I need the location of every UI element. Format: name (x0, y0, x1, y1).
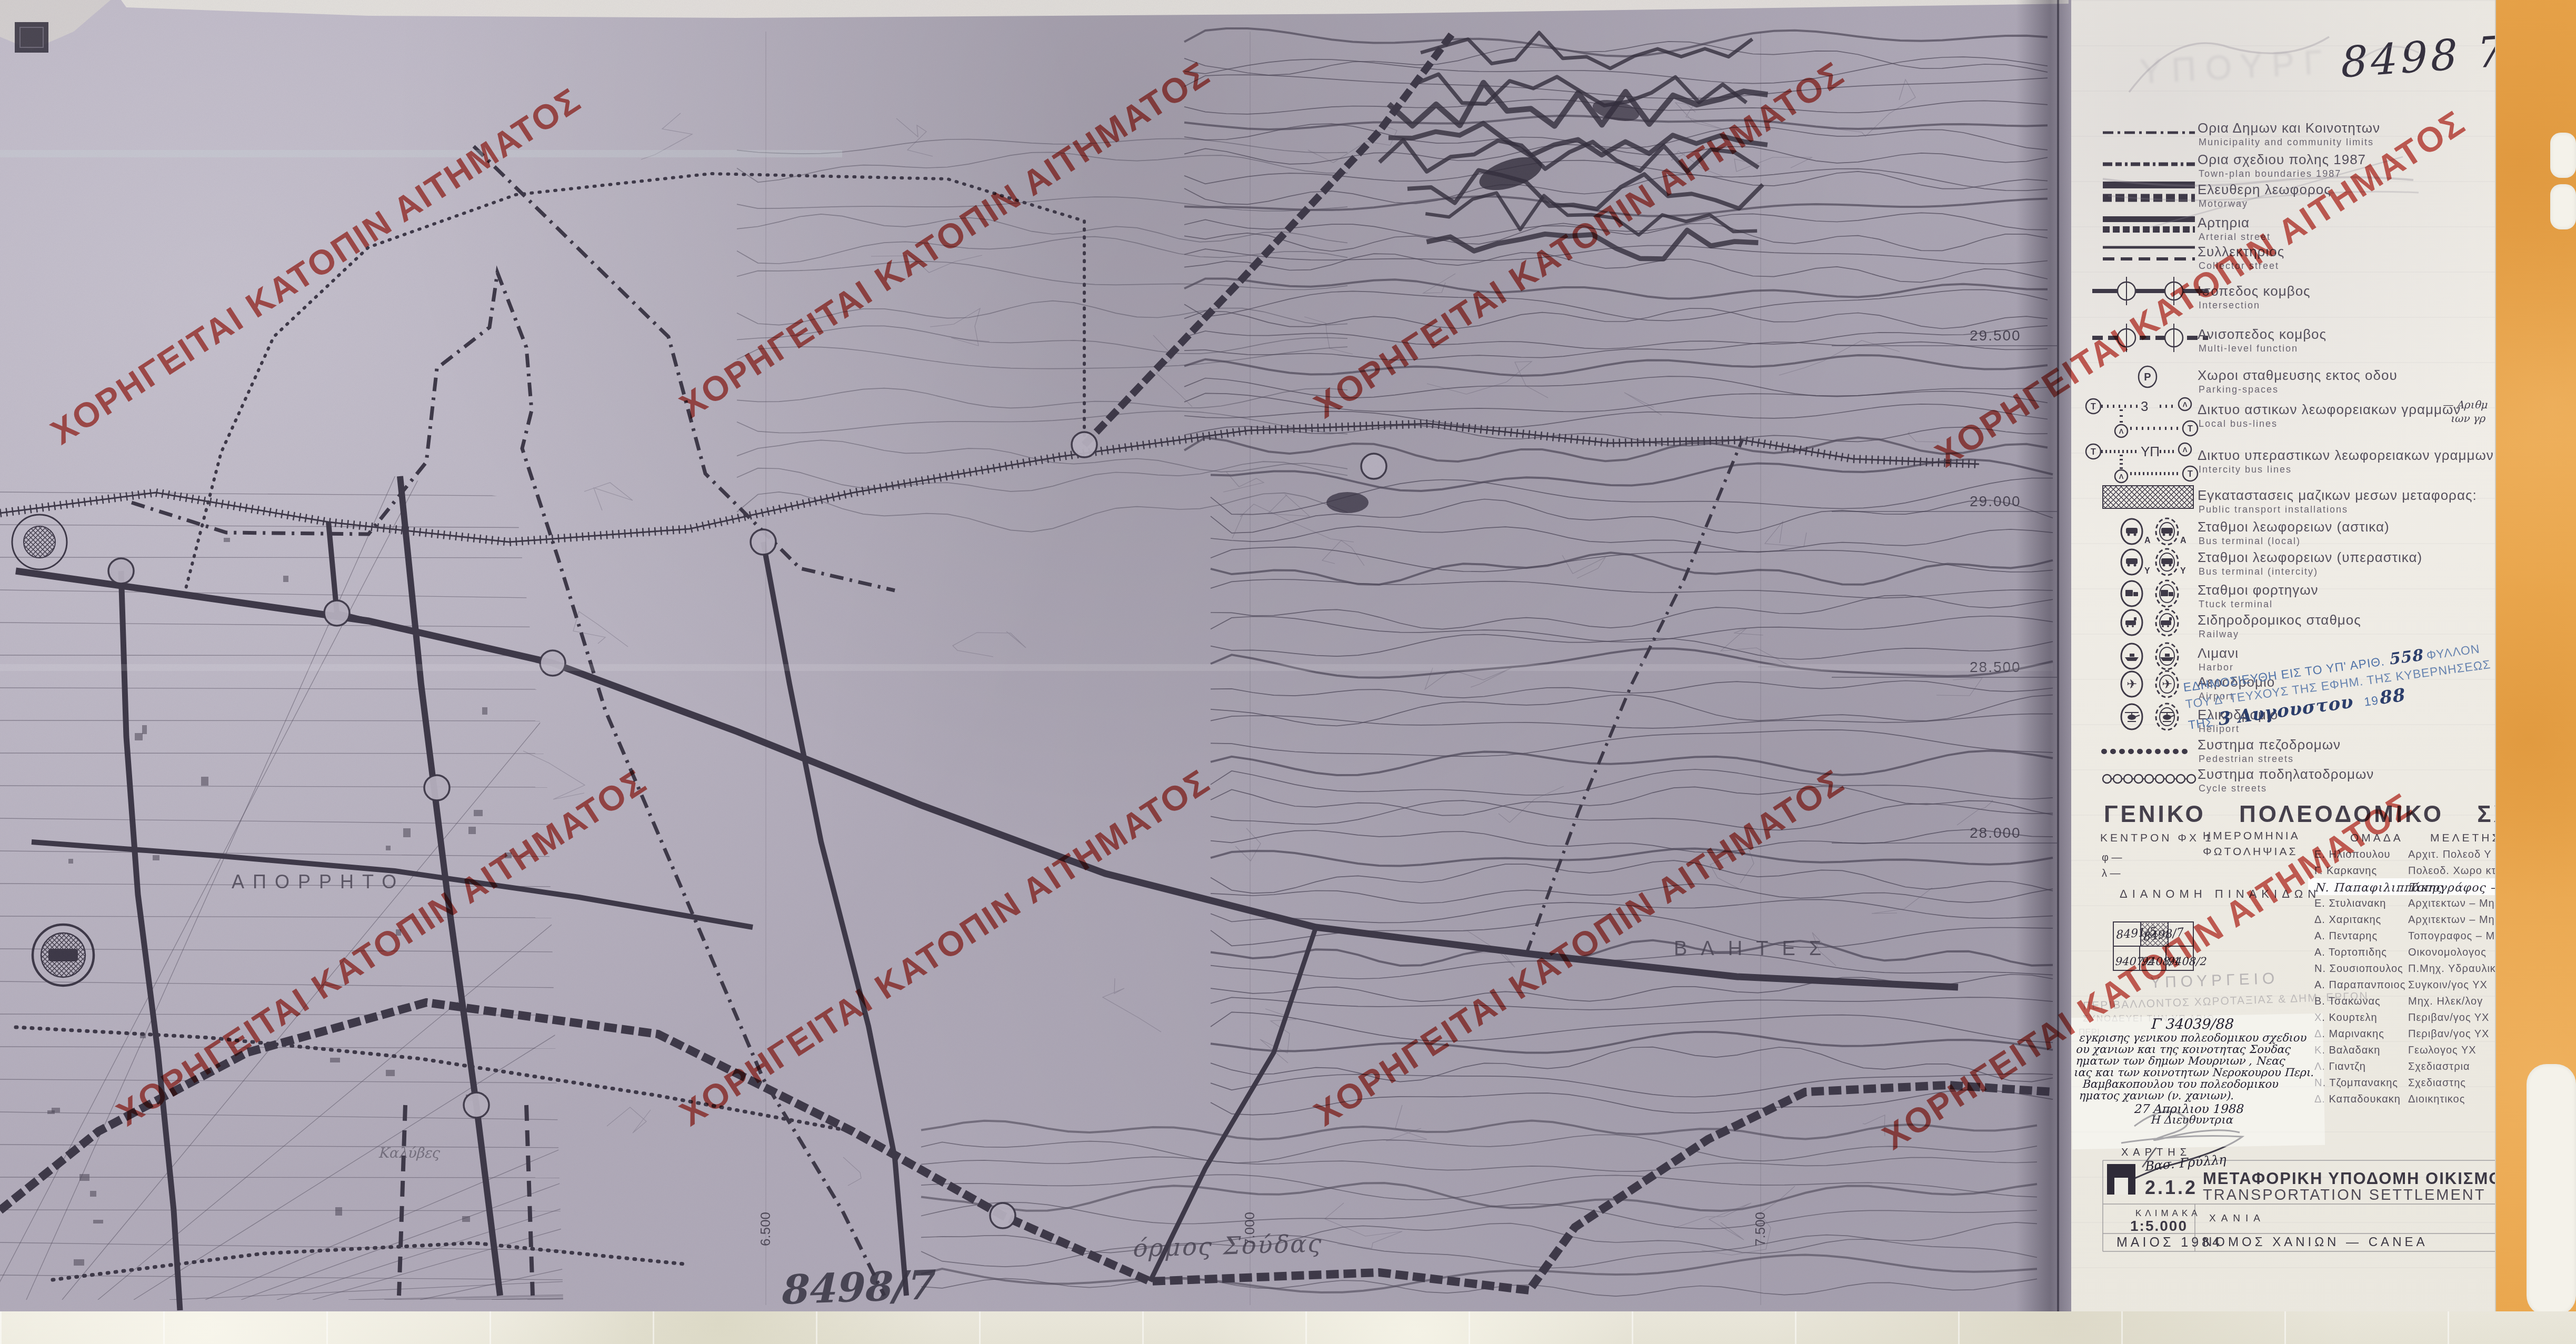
legend-item-gr: Αρτηρια (2198, 215, 2250, 231)
map-title-greek: ΜΕΤΑΦΟΡΙΚΗ ΥΠΟΔΟΜΗ ΟΙΚΙΣΜΟΣ (2203, 1169, 2495, 1188)
photo-date-label1: ΗΜΕΡΟΜΗΝΙΑ (2203, 829, 2300, 842)
team-member-name: Ν. Τζομπανακης (2314, 1077, 2398, 1089)
svg-text:8491/5: 8491/5 (2114, 925, 2157, 941)
punch-cutout-large (2527, 1064, 2576, 1316)
team-member-role: Αρχιτεκτων – Μη (2408, 897, 2495, 909)
stamp-hand-558: 558 (2387, 646, 2424, 668)
team-member-name: Α. Παραπανποιος (2314, 979, 2405, 991)
svg-text:P: P (2144, 371, 2151, 383)
legend-item-gr: Δικτυο αστικων λεωφορειακων γραμμων (2198, 402, 2461, 418)
legend-item-gr: Δικτυο υπεραστικων λεωφορειακων γραμμων (2198, 447, 2494, 464)
nomos-label: ΝΟΜΟΣ ΧΑΝΙΩΝ — CANEA (2203, 1235, 2428, 1249)
svg-text:Λ: Λ (2183, 400, 2188, 408)
note-line: ου χανιων και της κοινοτητας Σουδας (2075, 1043, 2290, 1056)
note-line: Βαμβακοπουλου του πολεοδομικου (2082, 1078, 2278, 1090)
lambda-label: λ — (2102, 867, 2121, 879)
svg-text:ΥΠ: ΥΠ (2141, 444, 2160, 459)
team-member-role: Οικονομολογος (2408, 946, 2487, 958)
note-line: ηματος χανιων (ν. χανιων). (2079, 1089, 2234, 1102)
map-title-english: TRANSPORTATION SETTLEMENT (2203, 1186, 2485, 1203)
svg-text:Λ: Λ (2183, 446, 2188, 454)
team-member-role: Τοπογράφος – Μη (2408, 881, 2495, 894)
plan-title: ΓΕΝΙΚΟ ΠΟΛΕΟΔΟΜΙΚΟ ΣΧΕΔΙΟ (2104, 801, 2495, 827)
svg-text:T: T (2091, 402, 2096, 411)
legend-item-en: Local bus-lines (2199, 418, 2278, 429)
team-member-name: Κ. Βαλαδακη (2314, 1044, 2380, 1056)
svg-text:3: 3 (2141, 398, 2148, 414)
team-member-role: Συγκοιν/γος ΥΧ (2408, 979, 2488, 991)
team-member-name: Δ. Καπαδουκακη (2314, 1093, 2401, 1105)
legend-item-note2: ιων γρ (2450, 412, 2485, 425)
note-ref: Γ 34039/88 (2150, 1016, 2233, 1032)
team-member-name: Δ. Χαριτακης (2314, 914, 2381, 926)
legend-item-en: Parking-spaces (2199, 384, 2279, 395)
punch-tab-2 (2550, 184, 2576, 229)
kentron-label: ΚΕΝΤΡΟΝ ΦΧ 1 (2100, 831, 2214, 844)
legend-item-en: Public transport installations (2199, 504, 2348, 515)
legend-item-gr: Εγκαταστασεις μαζικων μεσων μεταφορας: (2198, 487, 2477, 504)
note-line: ηματων των δημων Μουρνιων , Νεας (2075, 1055, 2285, 1067)
team-member-role: Τοπογραφος – Μη (2408, 930, 2495, 942)
scan-bottom-strip (0, 1311, 2576, 1344)
svg-text:Y: Y (2180, 566, 2186, 575)
team-member-name: Δ. Μαρινακης (2314, 1028, 2384, 1040)
legend-item-gr: Σταθμοι φορτηγων (2198, 582, 2318, 598)
note-signer-title: Η Διευθυντρια (2150, 1114, 2233, 1126)
legend-item-gr: Ορια Δημων και Κοινοτητων (2198, 120, 2380, 136)
team-member-role: Διοικητικος (2408, 1093, 2465, 1105)
phi-label: φ — (2102, 851, 2122, 864)
team-member-role: Γεωλογος ΥΧ (2408, 1044, 2477, 1056)
legend-item-gr: Χωροι σταθμευσης εκτος οδου (2198, 367, 2398, 384)
legend-item-gr: Σιδηροδρομικος σταθμος (2198, 612, 2361, 628)
stamp-19: 19 (2363, 693, 2380, 708)
svg-text:T: T (2188, 424, 2193, 433)
svg-text:T: T (2188, 469, 2193, 478)
legend-item-en: Bus terminal (local) (2199, 536, 2301, 547)
map-number: 2.1.2 (2145, 1177, 2198, 1199)
legend-item-en: Municipality and community limits (2199, 137, 2374, 148)
svg-text:T: T (2091, 447, 2096, 456)
team-member-role: Αρχιτεκτων – Μη (2408, 914, 2495, 926)
note-line: ιας και των κοινοτητων Νεροκουρου Περι. (2073, 1066, 2314, 1079)
team-member-name: Χ. Κουρτελη (2314, 1011, 2378, 1024)
scanned-map-sheet: 29.500 29.000 28.500 28.000 6.500 7.000 … (0, 0, 2576, 1344)
svg-text:Λ: Λ (2119, 473, 2124, 480)
team-member-role: Αρχιτ. Πολεοδ Υ (2408, 848, 2492, 860)
legend-item-gr: Σταθμοι λεωφορειων (αστικα) (2198, 519, 2390, 535)
svg-text:Λ: Λ (2119, 427, 2124, 435)
faded-stamp-text: ΥΠΟΥΡΓ (2139, 42, 2333, 91)
svg-text:Y: Y (2144, 566, 2150, 575)
team-member-role: Μηχ. Ηλεκ/λογ (2408, 995, 2483, 1007)
team-member-role: Περιβαν/γος ΥΧ (2408, 1011, 2489, 1024)
fold-shadow (2016, 0, 2071, 1344)
scale-label: ΚΛΙΜΑΚΑ (2135, 1208, 2201, 1219)
team-member-name: Ν. Σουσιοπουλος (2314, 962, 2403, 975)
scale-value: 1:5.000 (2130, 1218, 2188, 1235)
team-member-name: Ε. Στυλιανακη (2314, 897, 2386, 909)
team-member-role: Σχεδιαστρια (2408, 1060, 2470, 1072)
legend-item-gr: Λιμανι (2198, 645, 2239, 661)
legend-item-en: Motorway (2199, 198, 2248, 209)
legend-item-en: Ttuck terminal (2199, 599, 2273, 610)
svg-text:✈: ✈ (2126, 677, 2137, 691)
city-label: ΧΑΝΙΑ (2209, 1212, 2265, 1224)
legend-item-en: Cycle streets (2199, 783, 2267, 794)
punch-tab-1 (2550, 133, 2576, 178)
stamp-tis: ΤΗΣ (2188, 715, 2214, 732)
note-line: εγκρισης γενικου πολεοδομικου σχεδιου (2079, 1031, 2306, 1044)
chartis-label: ΧΑΡΤΗΣ (2121, 1146, 2191, 1158)
legend-item-en: Railway (2199, 629, 2239, 640)
legend-item-gr: Σταθμοι λεωφορειων (υπεραστικα) (2198, 549, 2422, 566)
svg-text:✈: ✈ (2162, 677, 2172, 691)
photo-date-label2: ΦΩΤΟΛΗΨΙΑΣ (2203, 845, 2298, 858)
legend-panel: ΥΠΟΥΡΓ 8498 7 PT 3 Λ Λ TT ΥΠ Λ Λ T A A Y… (2071, 0, 2495, 1344)
team-member-role: Π.Μηχ. Υδραυλικ (2408, 962, 2495, 975)
svg-text:A: A (2144, 536, 2151, 545)
legend-item-en: Multi-level function (2199, 343, 2298, 354)
legend-item-en: Bus terminal (intercity) (2199, 566, 2318, 577)
team-member-role: Πολεοδ. Χωρο κτ (2408, 865, 2495, 877)
team-member-role: Σχεδιαστης (2408, 1077, 2466, 1089)
legend-item-en: Intercity bus lines (2199, 464, 2292, 475)
team-member-name: Α. Τορτοπιδης (2314, 946, 2387, 958)
legend-item-en: Pedestrian streets (2199, 754, 2294, 765)
legend-item-gr: Ορια σχεδιου πολης 1987 (2198, 152, 2366, 168)
legend-item-gr: Συστημα πεζοδρομων (2198, 737, 2341, 753)
svg-text:A: A (2180, 536, 2186, 545)
team-member-name: Α. Πενταρης (2314, 930, 2378, 942)
legend-item-gr: Συστημα ποδηλατοδρομων (2198, 766, 2374, 783)
legend-item-en: Town-plan boundaries 1987 (2199, 168, 2341, 179)
stamp-hand-88: 88 (2377, 684, 2405, 708)
pi-logo (2107, 1164, 2135, 1195)
team-member-role: Περιβαν/γος ΥΧ (2408, 1028, 2489, 1040)
legend-item-note: — Αριθμ (2442, 398, 2487, 411)
legend-item-gr: Ανισοπεδος κομβος (2198, 326, 2327, 343)
team-header-meletis: ΜΕΛΕΤΗΣ (2430, 831, 2495, 844)
handwritten-archive-number: 8498 7 (2335, 27, 2495, 87)
panel-edge-line (2057, 0, 2059, 1344)
